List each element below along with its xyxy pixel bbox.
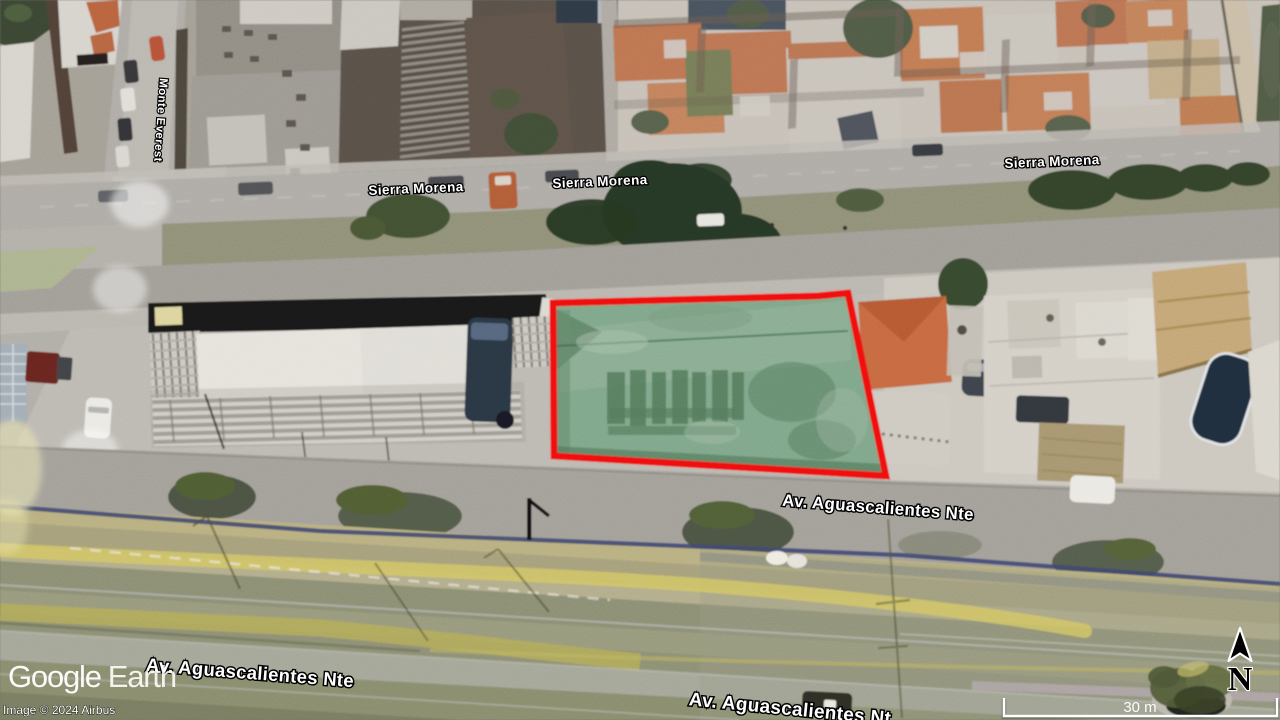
svg-text:Image © 2024 Airbus: Image © 2024 Airbus (3, 703, 115, 717)
svg-text:N: N (1228, 661, 1253, 698)
svg-text:30 m: 30 m (1123, 699, 1156, 716)
svg-text:GoogleEarth: GoogleEarth (8, 659, 176, 694)
